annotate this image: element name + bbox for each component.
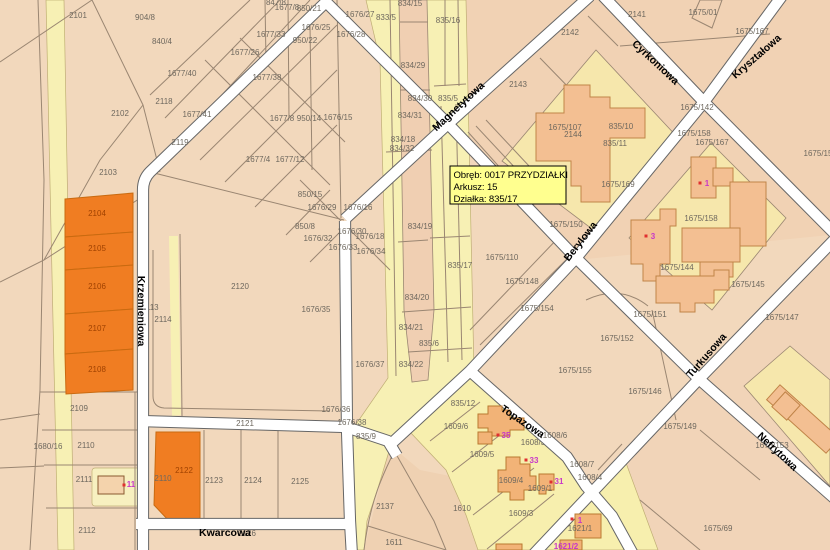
svg-text:1676/16: 1676/16 — [344, 203, 373, 212]
svg-text:834/18: 834/18 — [391, 135, 416, 144]
svg-text:2119: 2119 — [171, 138, 189, 147]
svg-text:1621/2: 1621/2 — [554, 542, 579, 550]
svg-text:33: 33 — [530, 456, 539, 465]
svg-text:1677/40: 1677/40 — [168, 69, 197, 78]
svg-text:1675/149: 1675/149 — [663, 422, 697, 431]
svg-text:2112: 2112 — [78, 526, 96, 535]
svg-text:1676/38: 1676/38 — [338, 418, 367, 427]
svg-text:1677/41: 1677/41 — [183, 110, 212, 119]
svg-text:1609/6: 1609/6 — [444, 422, 469, 431]
svg-text:2123: 2123 — [205, 476, 223, 485]
svg-text:2120: 2120 — [231, 282, 249, 291]
svg-text:1676/28: 1676/28 — [337, 30, 366, 39]
svg-text:1677/8: 1677/8 — [270, 114, 295, 123]
svg-text:1676/32: 1676/32 — [304, 234, 333, 243]
svg-text:1675/151: 1675/151 — [633, 310, 667, 319]
svg-text:2101: 2101 — [69, 11, 87, 20]
svg-text:Kwarcowa: Kwarcowa — [199, 527, 251, 539]
svg-text:834/32: 834/32 — [390, 144, 415, 153]
svg-text:1621/1: 1621/1 — [568, 524, 593, 533]
svg-text:835/17: 835/17 — [448, 261, 473, 270]
svg-text:834/21: 834/21 — [399, 323, 424, 332]
svg-text:1677/26: 1677/26 — [231, 48, 260, 57]
svg-text:1675/146: 1675/146 — [628, 387, 662, 396]
svg-text:2110: 2110 — [154, 474, 172, 483]
svg-text:835/12: 835/12 — [451, 399, 476, 408]
svg-text:2108: 2108 — [88, 365, 106, 374]
svg-text:Obręb: 0017 PRZYDZIAŁKI: Obręb: 0017 PRZYDZIAŁKI — [454, 170, 568, 181]
svg-text:1676/34: 1676/34 — [357, 247, 386, 256]
svg-text:1677/38: 1677/38 — [253, 73, 282, 82]
svg-text:834/22: 834/22 — [399, 360, 424, 369]
svg-text:2137: 2137 — [376, 502, 394, 511]
svg-text:950/22: 950/22 — [293, 36, 318, 45]
svg-text:835/10: 835/10 — [609, 122, 634, 131]
svg-text:1677/33: 1677/33 — [257, 30, 286, 39]
svg-text:Działka: 835/17: Działka: 835/17 — [454, 194, 518, 205]
svg-text:834/20: 834/20 — [405, 293, 430, 302]
svg-text:1608/4: 1608/4 — [578, 473, 603, 482]
svg-text:1680/16: 1680/16 — [34, 442, 63, 451]
svg-text:1675/144: 1675/144 — [660, 263, 694, 272]
svg-text:2110: 2110 — [77, 441, 95, 450]
svg-text:1675/169: 1675/169 — [601, 180, 635, 189]
svg-text:2118: 2118 — [155, 97, 173, 106]
svg-text:3: 3 — [651, 232, 656, 241]
svg-text:1675/154: 1675/154 — [520, 304, 554, 313]
svg-text:834/29: 834/29 — [401, 61, 426, 70]
svg-text:1675/150: 1675/150 — [549, 220, 583, 229]
svg-text:835/6: 835/6 — [419, 339, 440, 348]
svg-text:1675/15: 1675/15 — [804, 149, 830, 158]
svg-text:Arkusz: 15: Arkusz: 15 — [454, 182, 498, 193]
svg-text:835/9: 835/9 — [356, 432, 377, 441]
svg-text:840/4: 840/4 — [152, 37, 173, 46]
svg-text:2114: 2114 — [154, 315, 172, 324]
svg-text:1676/27: 1676/27 — [346, 10, 375, 19]
svg-text:1675/69: 1675/69 — [704, 524, 733, 533]
svg-text:1675/167: 1675/167 — [735, 27, 769, 36]
svg-text:2141: 2141 — [628, 10, 646, 19]
svg-text:2122: 2122 — [175, 466, 193, 475]
svg-text:835/16: 835/16 — [436, 16, 461, 25]
svg-text:1676/33: 1676/33 — [329, 243, 358, 252]
svg-text:1675/142: 1675/142 — [680, 103, 714, 112]
svg-text:1677/4: 1677/4 — [246, 155, 271, 164]
svg-text:1676/18: 1676/18 — [356, 232, 385, 241]
svg-text:2124: 2124 — [244, 476, 262, 485]
svg-text:1610: 1610 — [453, 504, 471, 513]
svg-text:1675/167: 1675/167 — [695, 138, 729, 147]
svg-text:1676/37: 1676/37 — [356, 360, 385, 369]
svg-text:2144: 2144 — [564, 130, 582, 139]
svg-text:1675/01: 1675/01 — [689, 8, 718, 17]
svg-text:1675/152: 1675/152 — [600, 334, 634, 343]
svg-text:2111: 2111 — [76, 475, 93, 484]
svg-text:35: 35 — [502, 431, 511, 440]
svg-text:1: 1 — [578, 516, 583, 525]
svg-text:2143: 2143 — [509, 80, 527, 89]
svg-text:2106: 2106 — [88, 282, 106, 291]
svg-text:1675/158: 1675/158 — [684, 214, 718, 223]
svg-text:904/8: 904/8 — [135, 13, 156, 22]
svg-text:2103: 2103 — [99, 168, 117, 177]
svg-text:1609/1: 1609/1 — [528, 484, 553, 493]
svg-text:1675/110: 1675/110 — [486, 253, 519, 262]
svg-text:950/14: 950/14 — [297, 114, 322, 123]
svg-text:2121: 2121 — [236, 419, 254, 428]
svg-text:850/21: 850/21 — [297, 4, 322, 13]
svg-text:1675/147: 1675/147 — [765, 313, 799, 322]
svg-text:1608/7: 1608/7 — [570, 460, 595, 469]
svg-text:835/11: 835/11 — [603, 139, 627, 148]
svg-text:1676/35: 1676/35 — [302, 305, 331, 314]
svg-text:834/15: 834/15 — [398, 0, 423, 8]
svg-text:1676/36: 1676/36 — [322, 405, 351, 414]
svg-text:1675/155: 1675/155 — [558, 366, 592, 375]
svg-text:834/19: 834/19 — [408, 222, 433, 231]
svg-text:2142: 2142 — [561, 28, 579, 37]
svg-text:1676/29: 1676/29 — [308, 203, 337, 212]
svg-text:2105: 2105 — [88, 244, 106, 253]
svg-text:1677/12: 1677/12 — [276, 155, 305, 164]
svg-text:1675/148: 1675/148 — [505, 277, 539, 286]
svg-text:850/15: 850/15 — [298, 190, 323, 199]
svg-text:11: 11 — [127, 480, 136, 489]
svg-text:1675/145: 1675/145 — [731, 280, 765, 289]
svg-text:1608/6: 1608/6 — [543, 431, 568, 440]
svg-text:Krzemieniowa: Krzemieniowa — [135, 276, 147, 347]
svg-text:834/31: 834/31 — [398, 111, 423, 120]
svg-text:1611: 1611 — [385, 538, 403, 547]
svg-text:1676/25: 1676/25 — [302, 23, 331, 32]
svg-text:31: 31 — [555, 477, 564, 486]
svg-text:850/8: 850/8 — [295, 222, 316, 231]
svg-text:1: 1 — [705, 179, 710, 188]
svg-text:834/30: 834/30 — [408, 94, 433, 103]
svg-text:1609/5: 1609/5 — [470, 450, 495, 459]
svg-text:833/5: 833/5 — [376, 13, 397, 22]
svg-text:2109: 2109 — [70, 404, 88, 413]
svg-text:1609/4: 1609/4 — [499, 476, 524, 485]
svg-text:2125: 2125 — [291, 477, 309, 486]
svg-text:2102: 2102 — [111, 109, 129, 118]
svg-text:1676/15: 1676/15 — [324, 113, 353, 122]
svg-text:2107: 2107 — [88, 324, 106, 333]
svg-text:2104: 2104 — [88, 209, 106, 218]
svg-text:1609/3: 1609/3 — [509, 509, 534, 518]
svg-text:1675/158: 1675/158 — [677, 129, 711, 138]
